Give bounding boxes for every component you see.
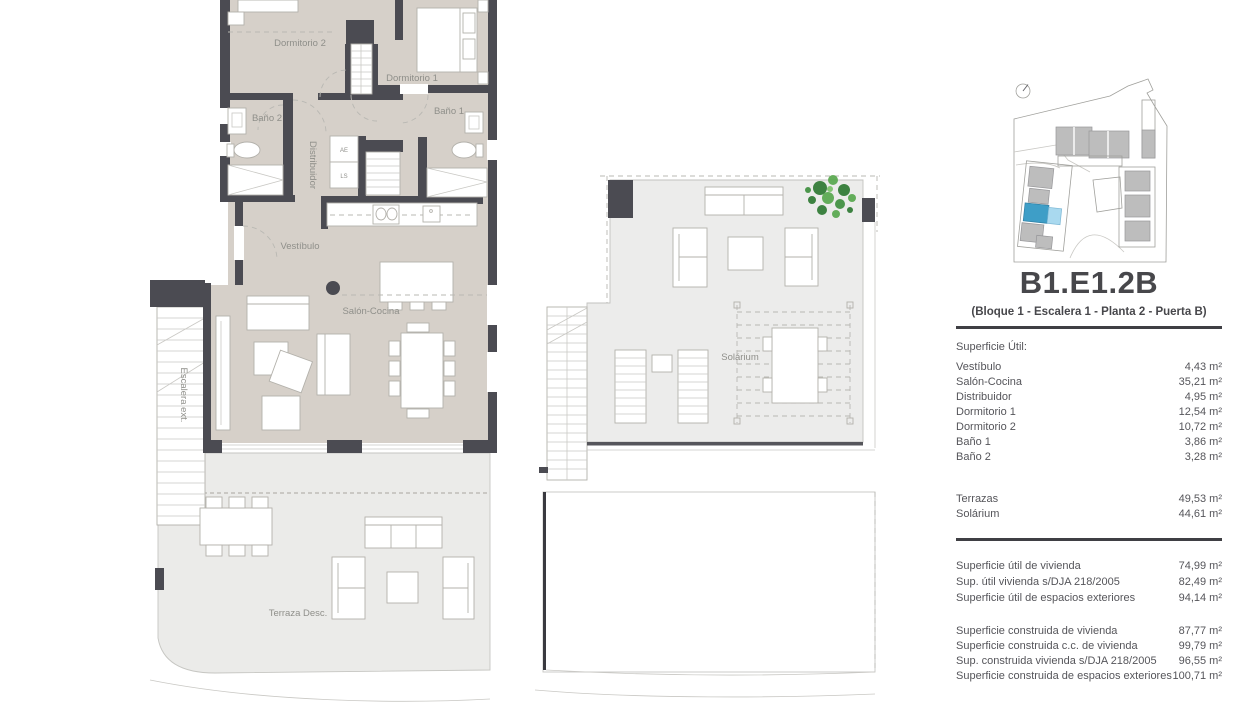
solarium-staircase bbox=[539, 307, 587, 480]
divider bbox=[956, 326, 1222, 329]
kitchen-cooktop bbox=[423, 206, 440, 222]
row-label: Superficie útil de espacios exteriores bbox=[956, 590, 1135, 606]
table-row: Baño 1 3,86 m² bbox=[956, 435, 1222, 450]
highlighted-unit bbox=[1023, 203, 1049, 223]
site-curve-line bbox=[150, 680, 490, 701]
row-value: 12,54 m² bbox=[1179, 405, 1222, 420]
summary-table-built: Superficie construida de vivienda 87,77 … bbox=[956, 624, 1222, 684]
row-label: Superficie construida de espacios exteri… bbox=[956, 669, 1172, 684]
table-row: Superficie construida c.c. de vivienda 9… bbox=[956, 639, 1222, 654]
row-value: 44,61 m² bbox=[1179, 507, 1222, 522]
table-row: Superficie construida de espacios exteri… bbox=[956, 669, 1222, 684]
interior-areas-table: Vestíbulo 4,43 m² Salón-Cocina 35,21 m² … bbox=[956, 360, 1222, 465]
table-row: Superficie construida de vivienda 87,77 … bbox=[956, 624, 1222, 639]
summary-table-useful: Superficie útil de vivienda 74,99 m² Sup… bbox=[956, 558, 1222, 606]
vestibulo-label: Vestíbulo bbox=[280, 241, 319, 252]
row-label: Baño 1 bbox=[956, 435, 991, 450]
tv-bench bbox=[216, 316, 230, 430]
row-value: 10,72 m² bbox=[1179, 420, 1222, 435]
dormitorio2-label: Dormitorio 2 bbox=[274, 38, 326, 49]
unit-title: B1.E1.2B bbox=[956, 266, 1222, 300]
armchair bbox=[262, 396, 300, 430]
row-value: 99,79 m² bbox=[1179, 639, 1222, 654]
dormitorio1-furniture bbox=[417, 0, 488, 84]
row-value: 87,77 m² bbox=[1179, 624, 1222, 639]
table-row: Superficie útil de espacios exteriores 9… bbox=[956, 590, 1222, 606]
building-top-right bbox=[1142, 100, 1155, 158]
info-panel: B1.E1.2B (Bloque 1 - Escalera 1 - Planta… bbox=[956, 266, 1222, 684]
building-cluster-left bbox=[1018, 161, 1073, 251]
table-row: Dormitorio 1 12,54 m² bbox=[956, 405, 1222, 420]
lower-terrace-outline bbox=[535, 492, 875, 697]
row-label: Solárium bbox=[956, 507, 999, 522]
table-row: Superficie útil de vivienda 74,99 m² bbox=[956, 558, 1222, 574]
solarium-wall bbox=[862, 198, 875, 222]
table-row: Sup. útil vivienda s/DJA 218/2005 82,49 … bbox=[956, 574, 1222, 590]
table-row: Solárium 44,61 m² bbox=[956, 507, 1222, 522]
terraza-label: Terraza Desc. bbox=[269, 608, 328, 619]
terrace-floor bbox=[158, 453, 490, 673]
row-value: 74,99 m² bbox=[1179, 558, 1222, 574]
loveseat bbox=[317, 334, 350, 395]
terrace-wall-stub bbox=[155, 568, 164, 590]
row-value: 94,14 m² bbox=[1179, 590, 1222, 606]
row-value: 4,43 m² bbox=[1185, 360, 1222, 375]
escalera-ext-label: Escalera ext. bbox=[178, 368, 189, 423]
row-label: Sup. útil vivienda s/DJA 218/2005 bbox=[956, 574, 1120, 590]
salon-cocina-label: Salón-Cocina bbox=[342, 306, 400, 317]
closet-ls-label: LS bbox=[340, 174, 347, 180]
solarium-label: Solárium bbox=[721, 352, 759, 363]
pergola-table bbox=[772, 328, 818, 403]
table-row: Dormitorio 2 10,72 m² bbox=[956, 420, 1222, 435]
solarium-armchair bbox=[673, 228, 707, 287]
row-value: 96,55 m² bbox=[1179, 654, 1222, 669]
table-row: Vestíbulo 4,43 m² bbox=[956, 360, 1222, 375]
site-plan bbox=[1014, 79, 1167, 262]
row-label: Terrazas bbox=[956, 492, 998, 507]
distribuidor-label: Distribuidor bbox=[307, 141, 318, 189]
solarium-plan: Solárium bbox=[535, 175, 880, 697]
sofa bbox=[247, 296, 309, 330]
table-row: Distribuidor 4,95 m² bbox=[956, 390, 1222, 405]
compass-icon bbox=[1016, 84, 1030, 98]
solarium-bottom-wall bbox=[587, 442, 863, 446]
row-value: 49,53 m² bbox=[1179, 492, 1222, 507]
main-floor-plan: Escalera ext. bbox=[150, 0, 498, 701]
row-label: Salón-Cocina bbox=[956, 375, 1022, 390]
building-cluster-right bbox=[1119, 167, 1155, 247]
row-label: Baño 2 bbox=[956, 450, 991, 465]
outdoor-sofa bbox=[365, 517, 442, 548]
dormitorio1-label: Dormitorio 1 bbox=[386, 73, 438, 84]
site-pool bbox=[1093, 177, 1122, 212]
row-value: 100,71 m² bbox=[1172, 669, 1222, 684]
floorplan-sheet: { "colors": { "wall": "#4b4b52", "floor_… bbox=[0, 0, 1240, 720]
solarium-wall bbox=[608, 180, 633, 218]
bano2-label: Baño 2 bbox=[252, 113, 282, 124]
interior-stair bbox=[351, 44, 372, 94]
row-label: Distribuidor bbox=[956, 390, 1012, 405]
dining-table bbox=[401, 333, 443, 408]
table-row: Terrazas 49,53 m² bbox=[956, 492, 1222, 507]
closet-ae-label: AE bbox=[340, 148, 348, 154]
side-table bbox=[652, 355, 672, 372]
kitchen-island bbox=[380, 262, 453, 302]
row-label: Dormitorio 2 bbox=[956, 420, 1016, 435]
row-label: Superficie construida c.c. de vivienda bbox=[956, 639, 1138, 654]
table-row: Salón-Cocina 35,21 m² bbox=[956, 375, 1222, 390]
row-label: Superficie construida de vivienda bbox=[956, 624, 1117, 639]
row-value: 3,28 m² bbox=[1185, 450, 1222, 465]
building-cluster-top bbox=[1056, 127, 1129, 166]
row-label: Sup. construida vivienda s/DJA 218/2005 bbox=[956, 654, 1157, 669]
exterior-areas-table: Terrazas 49,53 m² Solárium 44,61 m² bbox=[956, 492, 1222, 522]
table-row: Sup. construida vivienda s/DJA 218/2005 … bbox=[956, 654, 1222, 669]
row-label: Vestíbulo bbox=[956, 360, 1001, 375]
row-label: Dormitorio 1 bbox=[956, 405, 1016, 420]
divider bbox=[956, 538, 1222, 541]
bano1-label: Baño 1 bbox=[434, 106, 464, 117]
outdoor-table bbox=[200, 508, 272, 545]
section-label: Superficie Útil: bbox=[956, 340, 1222, 354]
highlighted-unit-terrace bbox=[1047, 207, 1062, 224]
unit-subtitle: (Bloque 1 - Escalera 1 - Planta 2 - Puer… bbox=[956, 306, 1222, 318]
row-value: 82,49 m² bbox=[1179, 574, 1222, 590]
outdoor-coffee-table bbox=[387, 572, 418, 603]
row-value: 3,86 m² bbox=[1185, 435, 1222, 450]
row-value: 4,95 m² bbox=[1185, 390, 1222, 405]
table-row: Baño 2 3,28 m² bbox=[956, 450, 1222, 465]
solarium-coffee-table bbox=[728, 237, 763, 270]
structural-column bbox=[326, 281, 340, 295]
row-value: 35,21 m² bbox=[1179, 375, 1222, 390]
row-label: Superficie útil de vivienda bbox=[956, 558, 1081, 574]
exterior-staircase: Escalera ext. bbox=[157, 307, 205, 525]
